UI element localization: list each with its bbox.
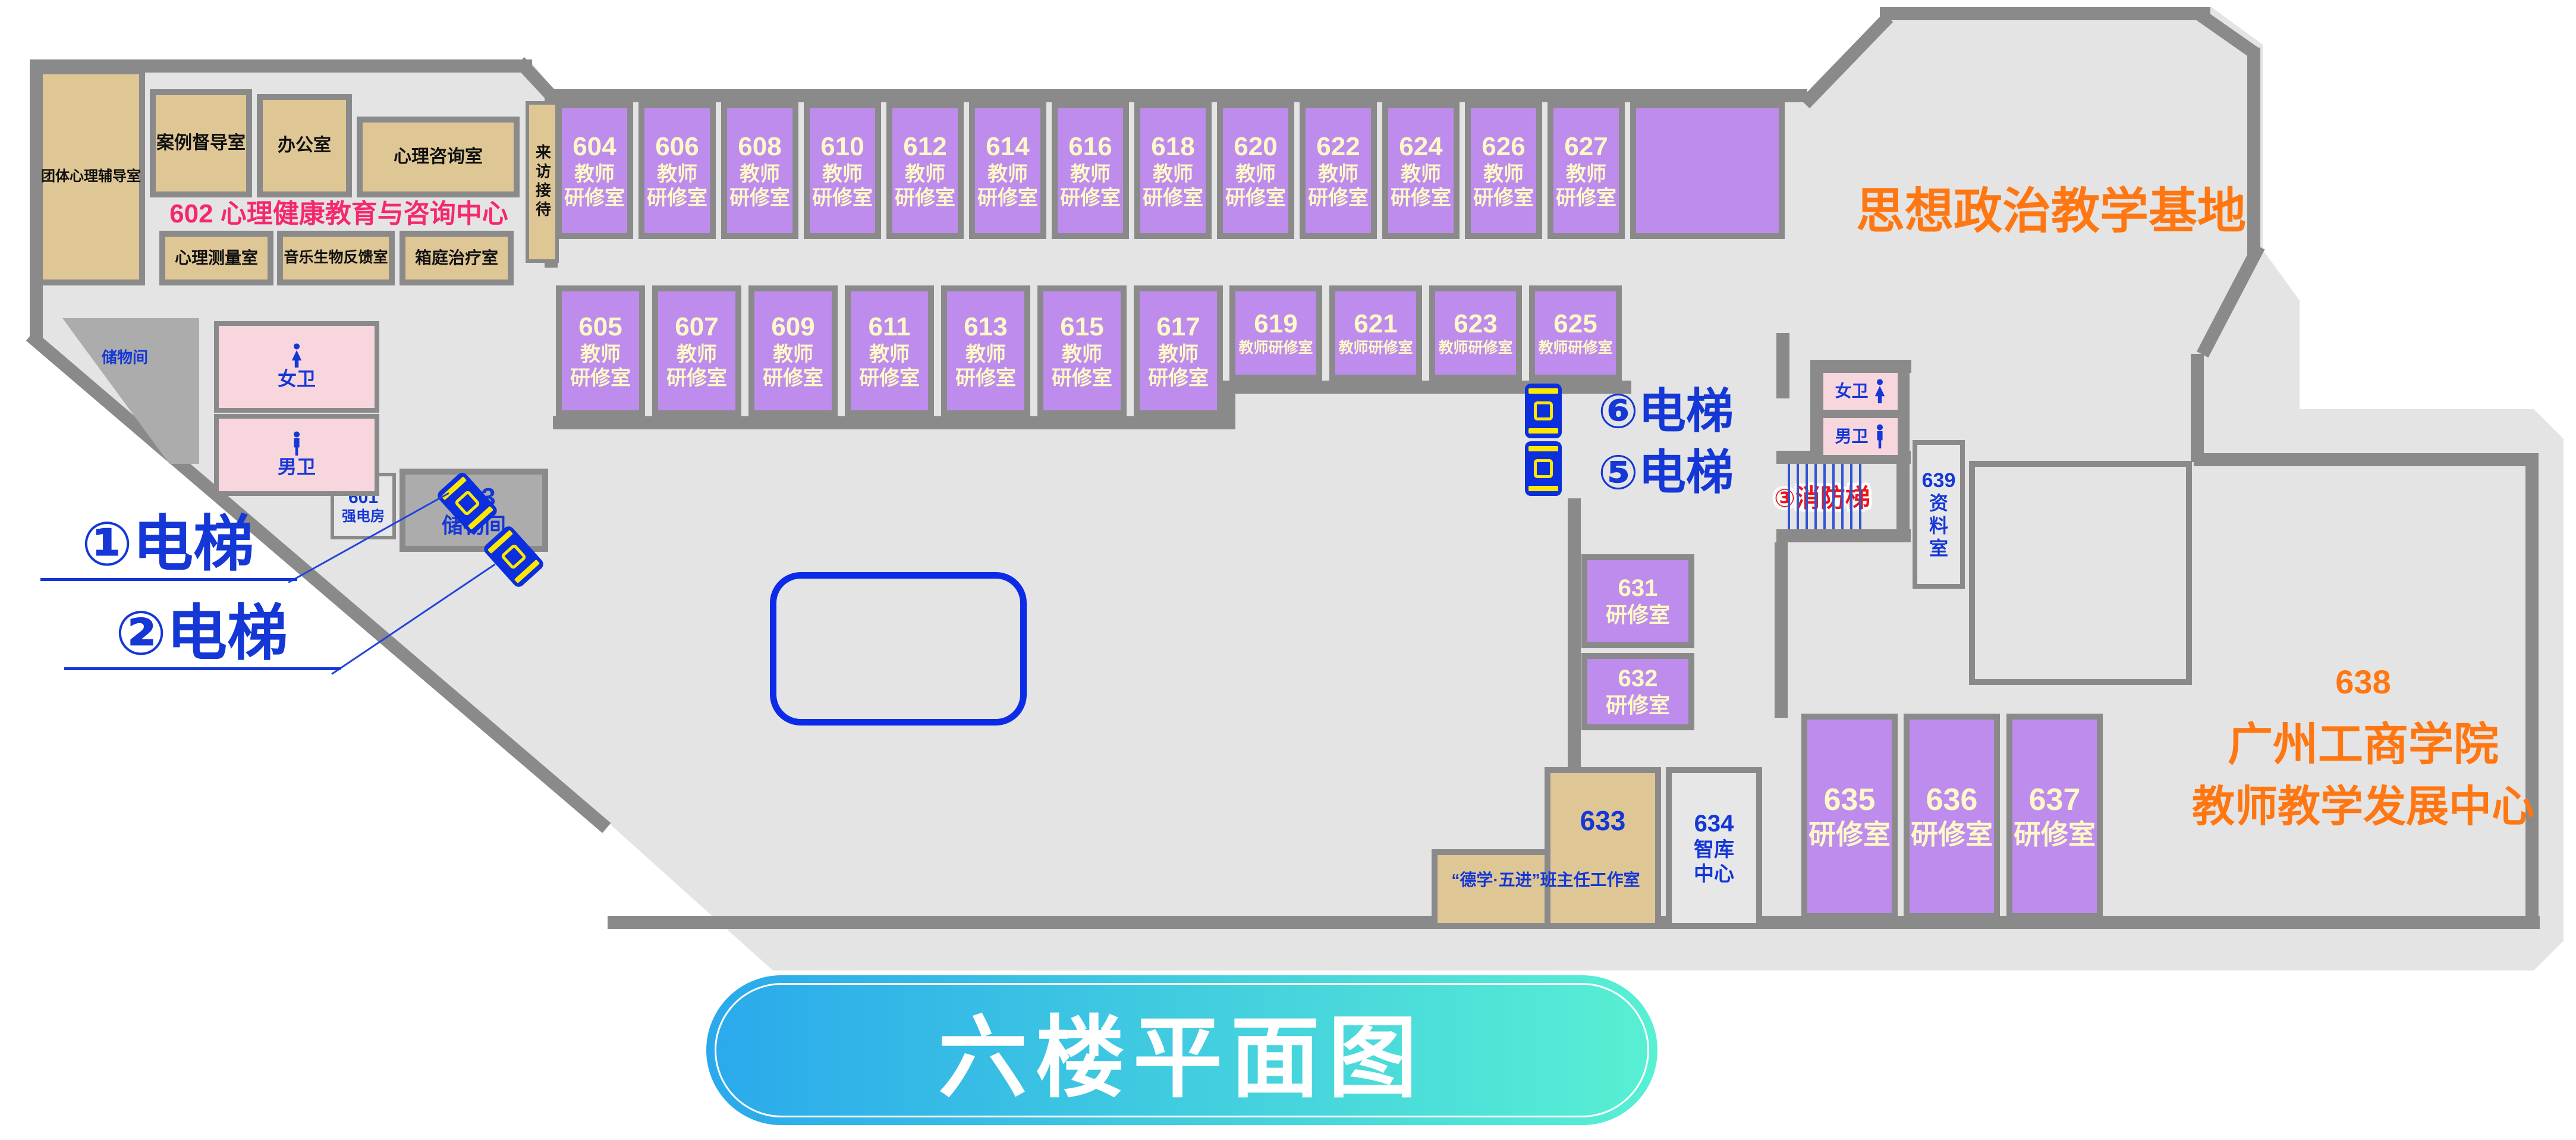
room-label: 626	[1482, 131, 1525, 162]
wall-segment-16	[1810, 360, 1823, 455]
room-label: 639	[1922, 469, 1956, 492]
wall-segment-8	[1222, 381, 1235, 429]
room-label: 636	[1926, 782, 1978, 818]
room-label: 教师	[1070, 162, 1111, 186]
room-anli-dudaoshi: 案例督导室	[150, 89, 252, 197]
room-label: 教师研修室	[1538, 340, 1612, 357]
room-616: 616教师研修室	[1052, 102, 1129, 239]
room-label: 627	[1564, 131, 1608, 162]
room-604: 604教师研修室	[556, 102, 633, 239]
room-label: 研修室	[763, 366, 823, 390]
room-empty-right-room	[1969, 461, 2192, 685]
room-label: 男卫	[1835, 426, 1868, 446]
room-label: 教师	[1235, 162, 1276, 186]
room-label: 研修室	[1148, 366, 1209, 390]
lift-cab	[454, 489, 480, 516]
room-label: 教师	[869, 343, 910, 366]
room-label: 研修室	[1808, 818, 1891, 850]
room-label: 607	[675, 312, 718, 343]
room-label: 教师	[1566, 162, 1606, 186]
room-633-main	[1545, 767, 1661, 929]
room-label: 箱庭治疗室	[415, 248, 498, 268]
room-label: 教师	[1401, 162, 1441, 186]
room-label: 616	[1068, 131, 1112, 162]
room-637: 637研修室	[2006, 714, 2103, 919]
floor-title-banner: 六楼平面图	[706, 975, 1657, 1125]
room-label: 教师研修室	[1338, 340, 1413, 357]
room-608: 608教师研修室	[721, 102, 798, 239]
room-label: 610	[820, 131, 864, 162]
room-nvwei-left: 女卫	[214, 321, 379, 413]
room-label: 研修室	[1060, 186, 1121, 210]
room-label: 研修室	[1308, 186, 1369, 210]
room-623: 623教师研修室	[1429, 285, 1522, 381]
wall-segment-6	[553, 416, 1226, 429]
room-607: 607教师研修室	[652, 285, 741, 416]
room-label: 研修室	[1473, 186, 1534, 210]
lift-bar-bottom	[1528, 486, 1558, 491]
room-label: 教师	[822, 162, 863, 186]
room-unlabeled-top	[1630, 102, 1785, 239]
wall-segment-23	[1880, 7, 2210, 20]
room-label: 635	[1824, 782, 1876, 818]
room-label: 604	[573, 131, 616, 162]
woman-icon	[290, 343, 303, 368]
wall-segment-19	[2191, 354, 2204, 462]
label-602-center: 602 心理健康教育与咨询中心	[137, 197, 541, 230]
room-label: 611	[869, 312, 911, 343]
room-nanwei-left: 男卫	[214, 414, 379, 496]
room-label: 617	[1156, 312, 1200, 343]
room-label: 研修室	[729, 186, 790, 210]
room-label: 教师	[574, 162, 615, 186]
room-626: 626教师研修室	[1465, 102, 1542, 239]
room-label: 案例督导室	[156, 133, 246, 153]
room-619: 619教师研修室	[1229, 285, 1322, 381]
atrium-outline	[770, 572, 1027, 726]
room-label: 心理咨询室	[394, 146, 483, 167]
room-label: 研修室	[647, 186, 707, 210]
room-label: 研修室	[1606, 602, 1670, 627]
room-627: 627教师研修室	[1548, 102, 1625, 239]
room-label: 教师	[677, 343, 717, 366]
room-label: 教师	[740, 162, 780, 186]
room-label: 教师	[773, 343, 813, 366]
room-label: 研修室	[1143, 186, 1203, 210]
room-610: 610教师研修室	[804, 102, 881, 239]
room-613: 613教师研修室	[941, 285, 1030, 416]
room-label: 研修室	[1391, 186, 1451, 210]
lift-bar-bottom	[1528, 428, 1558, 434]
room-label: 研修室	[2014, 818, 2096, 850]
room-label: 612	[903, 131, 946, 162]
room-label: 623	[1454, 309, 1497, 340]
room-label: 研修室	[1911, 818, 1993, 850]
lift-bar-top	[1528, 446, 1558, 451]
room-label: 资	[1929, 492, 1948, 515]
underline-lift2	[64, 667, 341, 670]
room-label: 教师	[1158, 343, 1199, 366]
room-634-zhiku-zhongxin: 634智库中心	[1666, 767, 1762, 929]
room-label: 618	[1151, 131, 1194, 162]
room-label: 教师	[1483, 162, 1524, 186]
man-icon	[1873, 424, 1886, 449]
room-label-row: 男卫	[1835, 424, 1886, 449]
room-635: 635研修室	[1801, 714, 1898, 919]
label-lift-6: ⑥电梯	[1571, 382, 1761, 441]
lift-bar-top	[1528, 388, 1558, 394]
room-xiangting-zhiliaoshi: 箱庭治疗室	[400, 231, 514, 285]
label-633-number: 633	[1545, 804, 1661, 838]
room-xinli-celiangshi: 心理测量室	[159, 231, 273, 285]
room-label: 研修室	[666, 366, 727, 390]
room-xinli-zixunshi: 心理咨询室	[357, 117, 520, 197]
room-label: 研修室	[1052, 366, 1112, 390]
room-label: 研修室	[1556, 186, 1616, 210]
woman-icon	[1873, 379, 1886, 404]
room-label: 男卫	[278, 456, 316, 479]
room-label: 女卫	[278, 368, 316, 391]
label-638-line2: 教师教学发展中心	[2176, 780, 2550, 834]
wall-segment-15	[1776, 529, 1911, 542]
room-label: 教师	[905, 162, 945, 186]
room-label: 研修室	[570, 366, 631, 390]
room-label: 办公室	[278, 135, 331, 156]
room-606: 606教师研修室	[639, 102, 716, 239]
room-label: 心理测量室	[175, 248, 258, 268]
room-label: 教师	[1062, 343, 1102, 366]
lift-cab	[1534, 401, 1553, 420]
room-label: 教师	[965, 343, 1006, 366]
floor-title: 六楼平面图	[706, 975, 1657, 1125]
underline-lift1	[40, 578, 297, 581]
room-632: 632研修室	[1581, 653, 1694, 730]
room-label: 605	[578, 312, 622, 343]
room-nvwei-right: 女卫	[1823, 373, 1898, 410]
room-label: 614	[986, 131, 1029, 162]
room-label: 632	[1618, 665, 1658, 693]
label-638-line1: 广州工商学院	[2176, 717, 2550, 773]
label-chuwujian: 储物间	[71, 348, 178, 368]
room-label: 608	[738, 131, 781, 162]
room-615: 615教师研修室	[1037, 285, 1127, 416]
room-label: 教师	[1318, 162, 1358, 186]
room-label-row: 女卫	[1835, 379, 1886, 404]
lift-cab	[1534, 459, 1553, 478]
room-620: 620教师研修室	[1217, 102, 1294, 239]
room-636: 636研修室	[1904, 714, 2000, 919]
elevator-5-icon	[1525, 441, 1562, 496]
fire-stairs-icon	[1788, 464, 1867, 529]
room-label: 634	[1694, 810, 1734, 838]
room-label: 料	[1929, 515, 1948, 538]
wall-segment-7	[1222, 381, 1631, 394]
room-618: 618教师研修室	[1134, 102, 1212, 239]
room-nanwei-right: 男卫	[1823, 418, 1898, 455]
lift-cab	[500, 543, 527, 570]
room-bangongshi: 办公室	[257, 94, 352, 197]
room-label: 音乐生物反馈室	[284, 249, 388, 267]
wall-segment-17	[1896, 360, 1910, 542]
room-639-ziliaoshi: 639资料室	[1913, 440, 1965, 589]
room-laifang-jiedai: 来访接待	[526, 101, 559, 263]
room-label: 研修室	[977, 186, 1038, 210]
room-label: 613	[964, 312, 1007, 343]
room-621: 621教师研修室	[1329, 285, 1422, 381]
room-624: 624教师研修室	[1382, 102, 1460, 239]
label-lift-1: ①电梯	[37, 507, 298, 583]
room-label: 624	[1399, 131, 1442, 162]
label-lift-2: ②电梯	[62, 596, 341, 672]
wall-segment-3	[553, 89, 1807, 102]
wall-segment-20	[2194, 453, 2539, 466]
room-label: 637	[2029, 782, 2081, 818]
room-611: 611教师研修室	[845, 285, 934, 416]
label-lift-5: ⑤电梯	[1571, 443, 1761, 503]
room-label: 教师研修室	[1238, 340, 1313, 357]
room-label: 研修室	[1225, 186, 1286, 210]
room-tuanti-xinli-fudaoshi: 团体心理辅导室	[37, 68, 145, 285]
room-label: 615	[1060, 312, 1103, 343]
room-label: 研修室	[1606, 693, 1670, 718]
room-label: 研修室	[812, 186, 873, 210]
room-612: 612教师研修室	[886, 102, 964, 239]
room-label: 教师	[580, 343, 621, 366]
room-label: 教师研修室	[1438, 340, 1512, 357]
room-label: 621	[1354, 309, 1397, 340]
floor-plan-canvas: 六楼平面图 团体心理辅导室案例督导室办公室心理咨询室来访接待心理测量室音乐生物反…	[0, 0, 2576, 1140]
wall-segment-11	[1776, 333, 1789, 398]
room-label: 团体心理辅导室	[41, 168, 141, 185]
room-label: 教师	[657, 162, 697, 186]
room-label: 622	[1316, 131, 1360, 162]
room-625: 625教师研修室	[1529, 285, 1622, 381]
label-633-name: “德学·五进”班主任工作室	[1427, 869, 1665, 890]
man-icon	[290, 431, 303, 456]
room-622: 622教师研修室	[1300, 102, 1377, 239]
room-label: 强电房	[342, 508, 385, 525]
room-631: 631研修室	[1581, 554, 1694, 648]
room-label: 研修室	[895, 186, 955, 210]
room-609: 609教师研修室	[748, 285, 838, 416]
wall-segment-18	[1775, 542, 1788, 718]
room-label: 606	[655, 131, 699, 162]
room-label: 教师	[987, 162, 1028, 186]
room-label: 研修室	[859, 366, 920, 390]
room-label: 智库	[1694, 838, 1734, 862]
room-label: 女卫	[1835, 381, 1868, 401]
elevator-6-icon	[1525, 384, 1562, 438]
room-label: 室	[1929, 538, 1948, 560]
room-label: 研修室	[564, 186, 625, 210]
room-605: 605教师研修室	[556, 285, 645, 416]
room-label: 625	[1553, 309, 1597, 340]
room-label: 研修室	[955, 366, 1016, 390]
label-638-number: 638	[2188, 661, 2539, 703]
room-617: 617教师研修室	[1134, 285, 1223, 416]
room-label: 中心	[1694, 862, 1734, 886]
room-label: 631	[1618, 574, 1658, 602]
room-label: 609	[771, 312, 814, 343]
room-614: 614教师研修室	[969, 102, 1046, 239]
room-label: 620	[1234, 131, 1277, 162]
room-label: 教师	[1153, 162, 1193, 186]
label-sixiang-zhengzhi: 思想政治教学基地	[1813, 181, 2289, 243]
room-yinyue-shengwu-fankuishi: 音乐生物反馈室	[277, 231, 395, 285]
room-label: 619	[1254, 309, 1297, 340]
